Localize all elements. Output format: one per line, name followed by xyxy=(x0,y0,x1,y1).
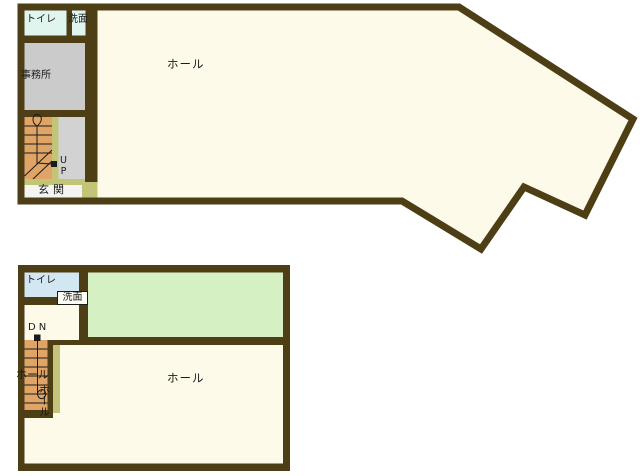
1f-outline xyxy=(21,7,633,249)
1f-up-label: UP xyxy=(58,155,68,177)
floor-plan-1f xyxy=(18,4,634,250)
1f-toilet-label: トイレ xyxy=(26,15,56,26)
2f-dn-label: DN xyxy=(28,323,49,334)
2f-washroom-box: 洗面 xyxy=(57,291,88,305)
1f-entrance-label: 玄関 xyxy=(38,184,68,196)
2f-below-stairs-area xyxy=(25,418,54,464)
1f-hall-label: ホール xyxy=(167,58,205,70)
floor-plan-drawing xyxy=(0,0,640,476)
floor-plan-page: トイレ 洗面 事務所 ホール UP 玄関 トイレ 洗面 DN ホール ホール ホ… xyxy=(0,0,640,476)
1f-entrance-opening xyxy=(82,182,98,198)
1f-office-label: 事務所 xyxy=(21,71,51,82)
2f-hall-label: ホール xyxy=(167,372,205,384)
1f-washroom-label: 洗面 xyxy=(68,15,88,26)
2f-stair-hall-label-horizontal: ホール xyxy=(16,369,49,381)
2f-stairs-olive-strip xyxy=(53,345,60,413)
2f-dn-marker xyxy=(34,335,41,342)
2f-stair-hall-label-vertical: ホール xyxy=(38,384,50,417)
1f-up-marker xyxy=(51,161,57,167)
2f-green-room xyxy=(88,273,283,338)
2f-washroom-label: 洗面 xyxy=(63,293,83,304)
2f-hall-room xyxy=(53,345,283,464)
2f-toilet-label: トイレ xyxy=(26,276,56,287)
